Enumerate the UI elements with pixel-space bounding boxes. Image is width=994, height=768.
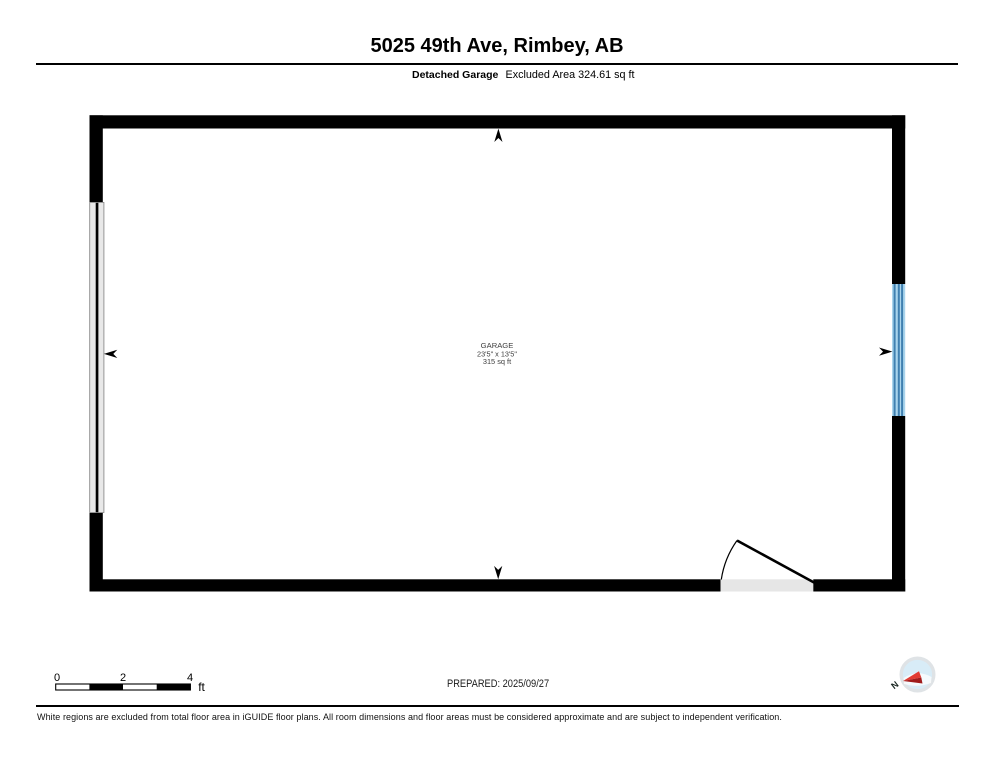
- svg-text:0: 0: [54, 672, 60, 684]
- svg-text:N: N: [889, 679, 900, 691]
- svg-text:2: 2: [120, 672, 126, 684]
- svg-text:ft: ft: [198, 680, 205, 694]
- svg-text:315 sq ft: 315 sq ft: [483, 357, 512, 366]
- svg-text:4: 4: [187, 672, 193, 684]
